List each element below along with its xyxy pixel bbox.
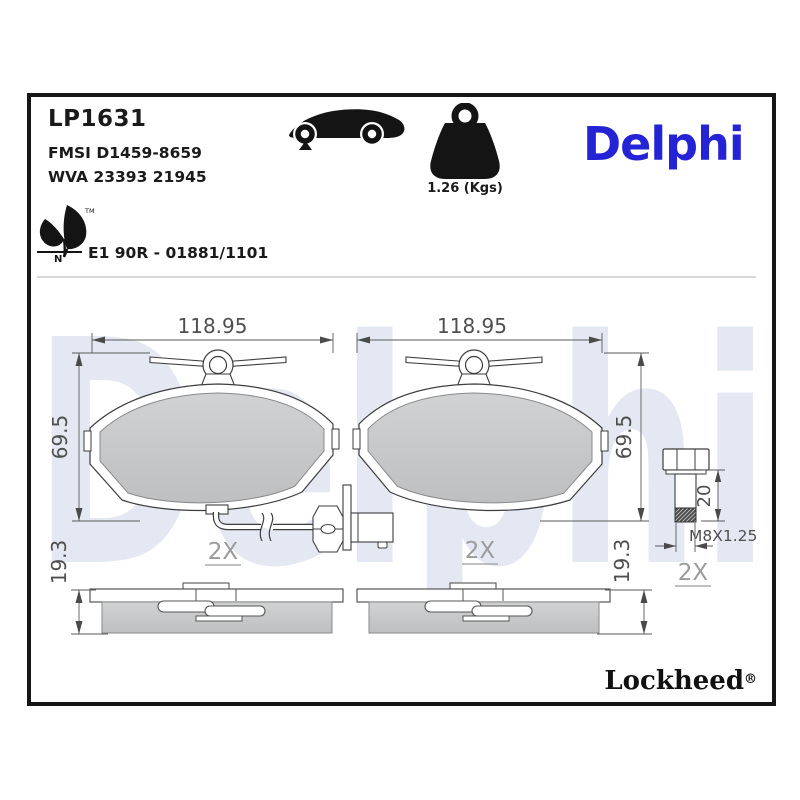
part-number: LP1631	[48, 106, 147, 132]
registered-mark: ®	[744, 672, 757, 687]
leaf-tm-mark: TM	[84, 207, 95, 215]
dim-pad-thickness-left: 19.3	[47, 540, 71, 585]
leaf-letter: N	[54, 254, 62, 265]
header-divider	[37, 276, 756, 278]
dim-bolt-length: 20	[694, 485, 715, 508]
weight-value: 1.26 (Kgs)	[419, 181, 511, 196]
dim-bolt-thread: M8X1.25	[689, 527, 757, 545]
technical-drawing: Delphi	[31, 280, 772, 702]
qty-label-left-pad: 2X	[208, 539, 239, 565]
qty-label-bolt: 2X	[678, 560, 709, 586]
dim-pad-width-right: 118.95	[437, 314, 507, 338]
dim-pad-height-right: 69.5	[612, 415, 636, 460]
ece-approval-number: E1 90R - 01881/1101	[88, 244, 268, 262]
pad-side-view-left	[90, 583, 343, 633]
dim-pad-thickness-right: 19.3	[610, 539, 634, 584]
dim-pad-width-left: 118.95	[178, 314, 248, 338]
wva-reference: WVA 23393 21945	[48, 168, 207, 186]
datasheet-page: LP1631 FMSI D1459-8659 WVA 23393 21945 1…	[0, 0, 800, 800]
lockheed-wordmark: Lockheed	[604, 666, 744, 696]
weight-icon	[425, 103, 505, 181]
fmsi-reference: FMSI D1459-8659	[48, 144, 202, 162]
car-icon	[287, 103, 411, 153]
lockheed-logo: Lockheed®	[604, 666, 757, 696]
qty-label-right-pad: 2X	[465, 538, 496, 564]
leaf-eco-icon: TM N	[37, 203, 95, 265]
sheet-frame: LP1631 FMSI D1459-8659 WVA 23393 21945 1…	[27, 93, 776, 706]
brand-logo: Delphi	[583, 117, 744, 171]
dim-pad-height-left: 69.5	[48, 415, 72, 460]
pad-side-view-right	[357, 583, 610, 633]
